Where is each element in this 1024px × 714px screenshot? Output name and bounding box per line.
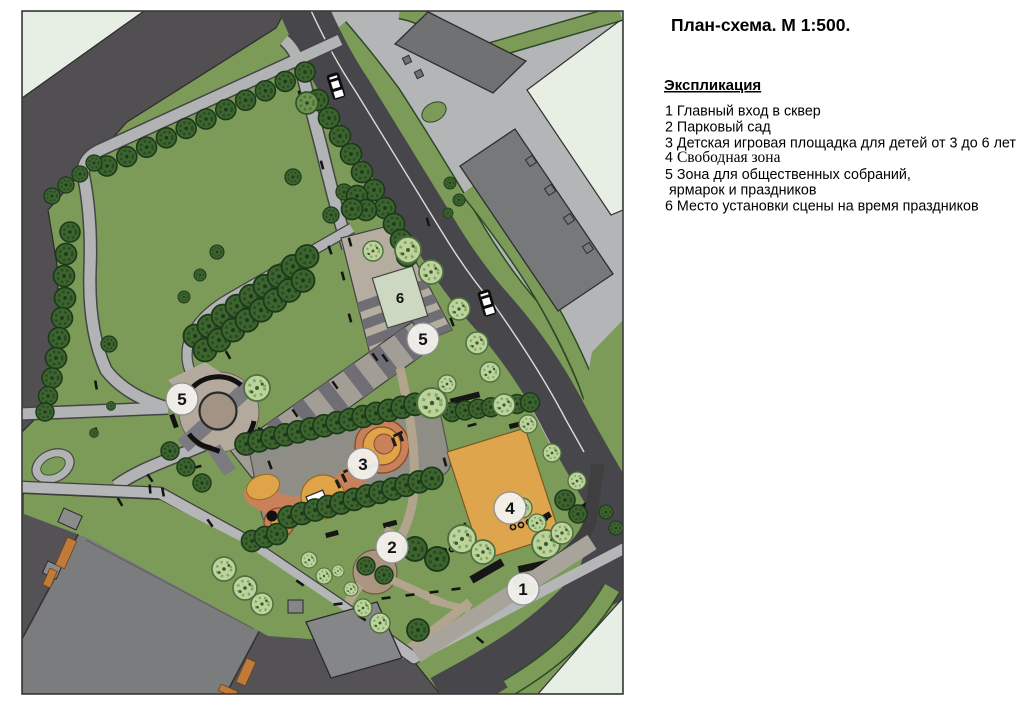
svg-text:3: 3 (358, 455, 367, 474)
svg-text:План-схема. М 1:500.: План-схема. М 1:500. (671, 15, 850, 35)
svg-text:ярмарок и праздников: ярмарок и праздников (669, 183, 816, 199)
svg-text:5: 5 (177, 390, 186, 409)
svg-text:1 Главный вход в сквер: 1 Главный вход в сквер (665, 104, 821, 120)
svg-text:2 Парковый сад: 2 Парковый сад (665, 120, 771, 136)
svg-text:1: 1 (518, 580, 527, 599)
svg-text:5 Зона для общественных собран: 5 Зона для общественных собраний, (665, 167, 911, 183)
svg-text:4 Свободная зона: 4 Свободная зона (665, 149, 781, 166)
svg-text:4: 4 (505, 499, 515, 518)
svg-text:2: 2 (387, 538, 396, 557)
svg-text:6 Место установки сцены на вре: 6 Место установки сцены на время праздни… (665, 199, 979, 215)
svg-text:6: 6 (396, 290, 404, 307)
svg-text:5: 5 (418, 330, 427, 349)
svg-text:Экспликация: Экспликация (664, 77, 761, 94)
